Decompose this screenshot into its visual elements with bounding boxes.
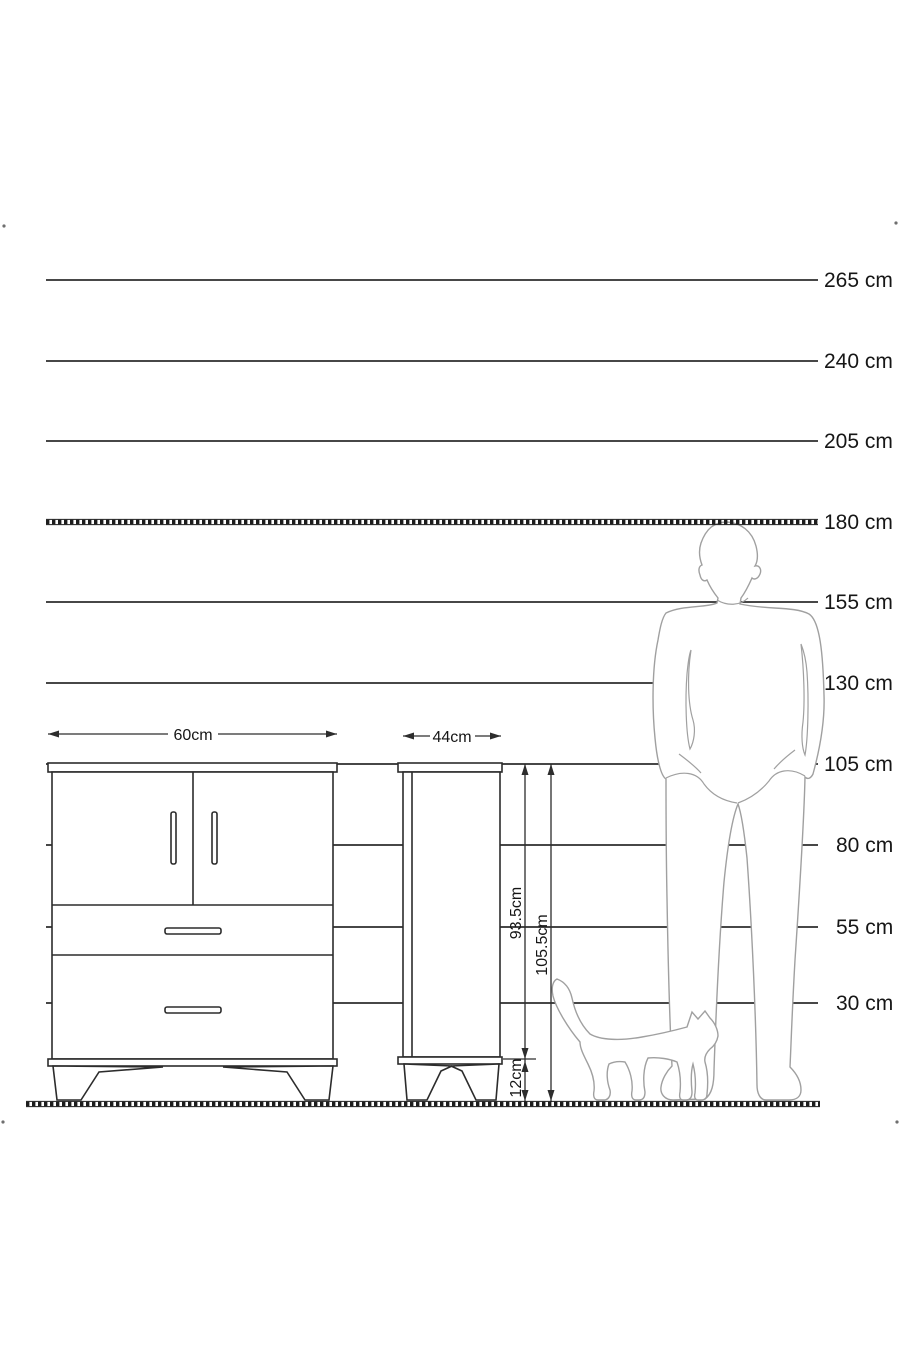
man-outline — [653, 522, 824, 1100]
height-dimension-93-5cm: 93.5cm — [503, 764, 536, 1059]
large-cabinet-right-leg — [223, 1066, 333, 1100]
width-dimension-label: 60cm — [173, 727, 212, 744]
height-dimension-label: 93.5cm — [508, 887, 525, 939]
diagram-drawing: 265 cm 240 cm 205 cm 180 cm 155 cm 130 c… — [0, 0, 900, 1350]
arrow-right-icon — [326, 731, 337, 738]
height-line-180cm-hatched — [46, 519, 818, 524]
large-cabinet — [48, 763, 337, 1100]
height-line-label: 30 cm — [836, 992, 893, 1015]
top-drawer-handle — [165, 928, 221, 934]
arrow-down-icon — [548, 1090, 555, 1101]
corner-dot — [2, 224, 5, 227]
arrow-right-icon — [490, 733, 501, 740]
width-dimension-label: 44cm — [432, 729, 471, 746]
height-line-265cm: 265 cm — [46, 269, 893, 292]
left-door-handle — [171, 812, 176, 864]
arrow-left-icon — [403, 733, 414, 740]
corner-dot — [894, 221, 897, 224]
height-line-205cm: 205 cm — [46, 430, 893, 453]
height-line-label: 80 cm — [836, 834, 893, 857]
large-cabinet-top-panel — [48, 763, 337, 772]
height-line-label: 155 cm — [824, 591, 893, 614]
small-cabinet-body — [403, 772, 500, 1057]
height-line-label: 55 cm — [836, 916, 893, 939]
arrow-up-icon — [548, 764, 555, 775]
right-door-handle — [212, 812, 217, 864]
height-line-label: 205 cm — [824, 430, 893, 453]
corner-dot — [895, 1120, 898, 1123]
height-dimension-105-5cm: 105.5cm — [534, 764, 555, 1102]
large-cabinet-left-leg — [53, 1066, 163, 1100]
furniture-dimension-diagram: 265 cm 240 cm 205 cm 180 cm 155 cm 130 c… — [0, 0, 900, 1350]
height-line-label-180: 180 cm — [824, 511, 893, 534]
small-cabinet-top-panel — [398, 763, 502, 772]
small-cabinet — [398, 763, 502, 1100]
small-cabinet-right-leg — [451, 1064, 499, 1100]
small-cabinet-left-leg — [404, 1064, 452, 1100]
height-dimension-12cm: 12cm — [508, 1058, 529, 1102]
ground-line-hatched — [26, 1101, 820, 1106]
large-cabinet-bottom-panel — [48, 1059, 337, 1066]
arrow-down-icon — [522, 1048, 529, 1059]
width-dimension-60cm: 60cm — [48, 723, 337, 744]
width-dimension-44cm: 44cm — [403, 725, 501, 746]
bottom-drawer-handle — [165, 1007, 221, 1013]
man-silhouette — [653, 522, 824, 1100]
leg-height-dimension-label: 12cm — [508, 1058, 525, 1097]
height-line-label: 105 cm — [824, 753, 893, 776]
height-line-label: 240 cm — [824, 350, 893, 373]
arrow-up-icon — [522, 764, 529, 775]
small-cabinet-bottom-panel — [398, 1057, 502, 1064]
total-height-dimension-label: 105.5cm — [534, 914, 551, 975]
height-line-label: 130 cm — [824, 672, 893, 695]
corner-dot — [1, 1120, 4, 1123]
height-line-240cm: 240 cm — [46, 350, 893, 373]
height-line-label: 265 cm — [824, 269, 893, 292]
arrow-left-icon — [48, 731, 59, 738]
